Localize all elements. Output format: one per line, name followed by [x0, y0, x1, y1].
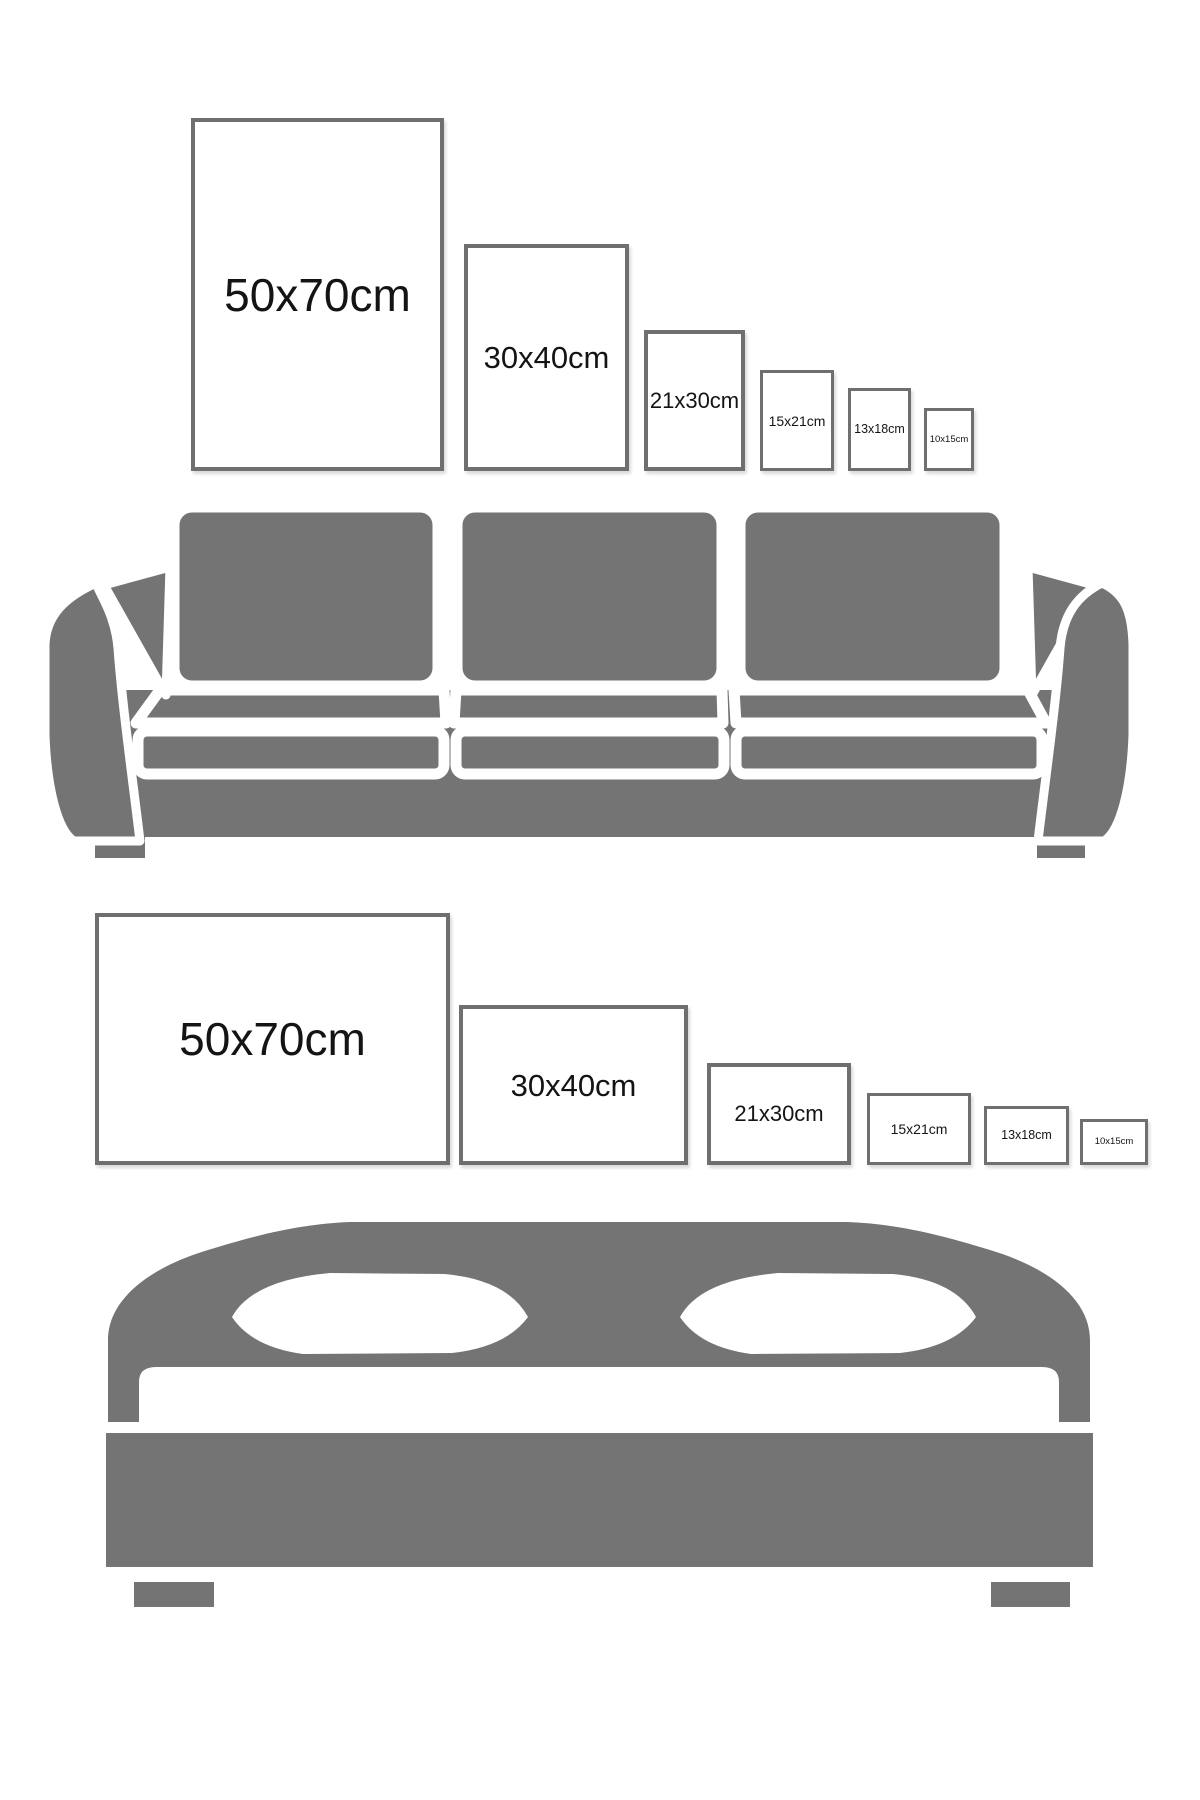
bed-pillow	[232, 1273, 528, 1354]
frame-size-label: 10x15cm	[1095, 1137, 1134, 1147]
frame-landscape-15x21: 15x21cm	[867, 1093, 971, 1165]
frame-landscape-10x15: 10x15cm	[1080, 1119, 1148, 1165]
frame-landscape-50x70: 50x70cm	[95, 913, 450, 1165]
frame-size-label: 30x40cm	[511, 1070, 637, 1101]
frame-size-label: 21x30cm	[734, 1103, 823, 1125]
frame-landscape-13x18: 13x18cm	[984, 1106, 1069, 1165]
frame-size-label: 13x18cm	[1001, 1129, 1052, 1142]
bed-icon	[0, 1200, 1200, 1620]
frame-landscape-21x30: 21x30cm	[707, 1063, 851, 1165]
bed-base	[106, 1433, 1093, 1567]
size-guide-page: 50x70cm 30x40cm 21x30cm 15x21cm 13x18cm …	[0, 0, 1200, 1800]
frame-size-label: 15x21cm	[891, 1122, 948, 1136]
frame-size-label: 50x70cm	[179, 1016, 366, 1062]
bed-pillow	[680, 1273, 976, 1354]
bed-foot	[991, 1582, 1070, 1607]
frame-landscape-30x40: 30x40cm	[459, 1005, 688, 1165]
bed-foot	[134, 1582, 214, 1607]
